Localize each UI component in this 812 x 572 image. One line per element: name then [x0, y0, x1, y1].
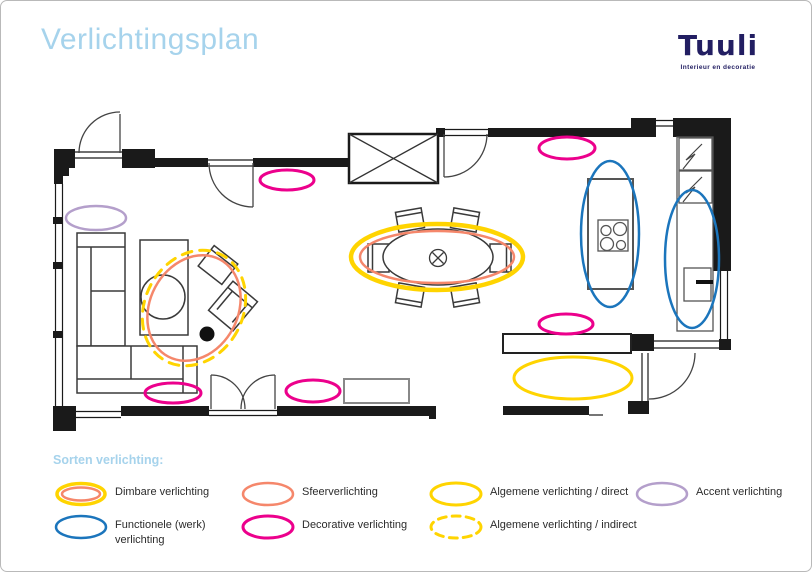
floor-plan: [1, 1, 811, 571]
garden-door: [649, 353, 695, 399]
lighting-plan-page: Verlichtingsplan Tuuli Interieur en deco…: [0, 0, 812, 572]
kitchen-wall-units: [677, 137, 713, 331]
kitchen-counter: [503, 334, 631, 353]
oven: [684, 268, 711, 301]
light-accent: [66, 206, 126, 230]
light-decoratief: [539, 137, 595, 159]
sideboard: [344, 379, 409, 403]
light-direct: [514, 357, 632, 399]
entry-door: [79, 112, 120, 153]
light-decoratief: [260, 170, 314, 190]
interior-door-left: [209, 163, 253, 207]
dining-table: [383, 229, 493, 285]
interior-door-right: [444, 134, 487, 177]
floor-lamp: [200, 327, 215, 342]
french-doors: [211, 375, 275, 409]
light-decoratief: [286, 380, 340, 402]
light-decoratief: [539, 314, 593, 334]
kitchen-island: [588, 179, 633, 289]
stair-box: [349, 134, 438, 183]
armchair-large: [209, 281, 258, 331]
